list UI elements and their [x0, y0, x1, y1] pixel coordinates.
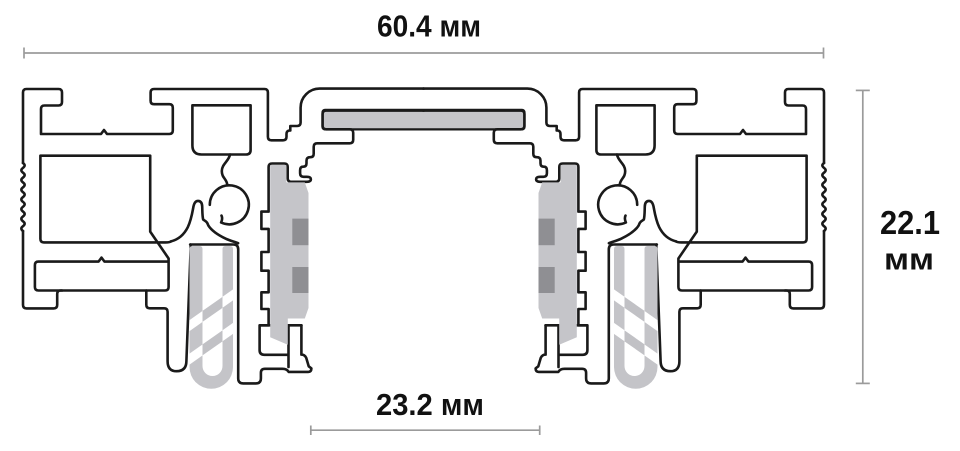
svg-text:23.2 мм: 23.2 мм	[376, 387, 484, 422]
svg-text:22.1: 22.1	[880, 204, 940, 241]
svg-text:мм: мм	[884, 242, 934, 277]
svg-text:60.4 мм: 60.4 мм	[377, 9, 481, 44]
